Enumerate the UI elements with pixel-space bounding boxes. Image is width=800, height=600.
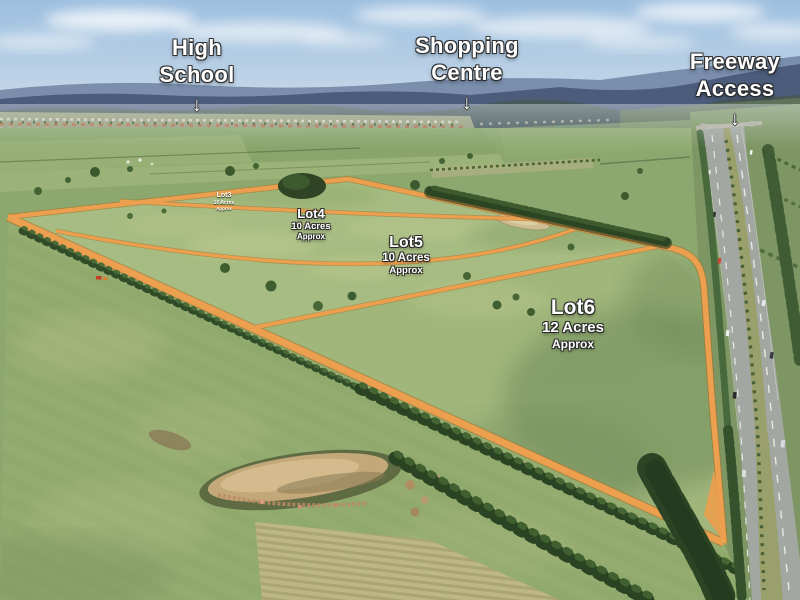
- aerial-scene: [0, 0, 800, 600]
- aerial-land-sale-photo: High School ↓ Shopping Centre ↓ Freeway …: [0, 0, 800, 600]
- farm-machinery: [96, 276, 102, 280]
- horizon-haze: [0, 104, 800, 148]
